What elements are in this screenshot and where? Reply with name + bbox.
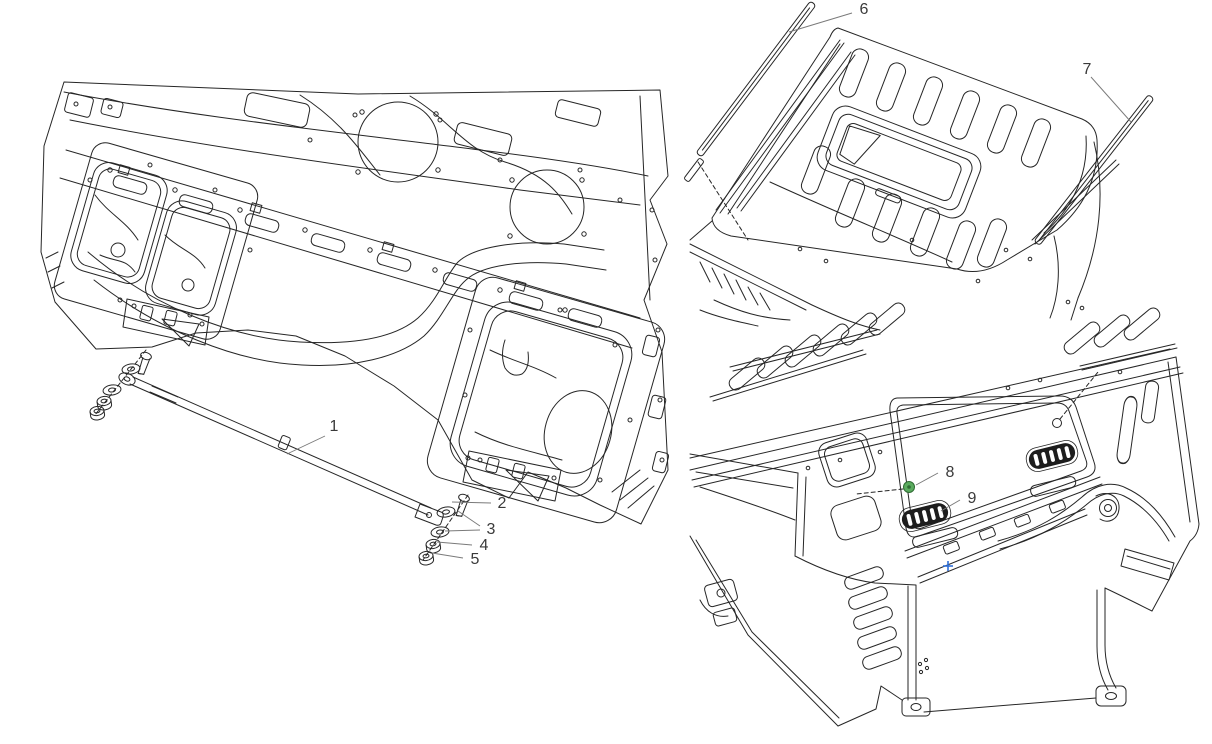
callout-label-6: 6 [860,1,869,18]
callout-label-2: 2 [498,495,507,512]
leader-line-7 [1091,77,1131,122]
callout-label-9: 9 [968,490,977,507]
leader-line-3 [458,511,480,526]
underbody-silhouette [41,82,668,524]
washer-part-3 [436,506,455,519]
leader-line-2 [452,502,491,503]
leader-line-1 [287,436,325,454]
callout-label-3: 3 [487,521,496,538]
nut-part-5 [418,551,434,566]
exploded-parts-diagram: 123456789 [0,0,1212,744]
leader-line-3 [445,530,480,531]
wheelarch-opening-left-2 [142,197,240,319]
sunroof-opening [811,102,985,227]
leader-line-5 [432,553,463,558]
roof-dots [798,238,1032,283]
cab-underbody-view [41,82,669,566]
corner-clips [64,92,124,118]
rear-roof-band [690,301,1183,487]
washer-icon [102,384,121,396]
washer-part-3 [430,526,449,538]
rear-left-sidewall [690,430,903,726]
stabilizer-bar-part-1 [117,371,443,526]
rear-sill-rails [905,477,1102,583]
door-pillar-edge [1050,142,1100,320]
dashed-reference-line [856,489,903,494]
roof-rib-slots [799,47,1053,272]
round-floor-hole [508,170,586,244]
right-edge-strip [612,96,669,508]
slotted-cross-rail [60,150,640,348]
nut-icon [89,406,105,421]
drip-rail-part-6 [684,1,816,240]
callout-layer: 123456789 [287,1,1131,571]
roof-side-rails [716,40,1119,244]
bolt-part-2 [453,493,470,518]
cab-roof-view [684,1,1154,330]
datum-cross-blue [943,561,953,571]
step-slots [843,565,903,671]
parts-diagram-page: 123456789 [0,0,1212,744]
reference-lines-layer [856,372,1098,494]
wheelarch-opening-right [423,273,669,527]
leader-line-4 [437,542,472,545]
wheelarch-opening-left [67,159,171,288]
nut-icon [96,396,112,411]
callout-label-5: 5 [471,551,480,568]
cowl-and-windshield-area [690,221,880,330]
vent-grille-part-9-right [1024,438,1080,474]
grommet-part-8 [904,482,915,493]
callout-label-4: 4 [480,537,489,554]
drip-rail-part-7 [1034,95,1154,246]
floor-u-channel [88,243,606,366]
washer-icon [121,363,140,375]
callout-label-7: 7 [1083,61,1092,78]
round-floor-hole [356,102,440,182]
callout-label-8: 8 [946,464,955,481]
floor-seam [70,120,640,205]
vent-grille-part-9-left [897,498,953,534]
rear-window-opening-2 [829,494,884,542]
fastener-stack-left [89,350,152,421]
leader-line-8 [916,473,938,485]
floor-hatches [243,92,601,157]
floor-cutout [795,556,1096,716]
left-openings-frame [51,139,261,342]
rivet-dots [88,113,664,482]
cab-rear-view [690,301,1199,726]
callout-label-1: 1 [330,418,339,435]
harness-tube [300,95,380,175]
